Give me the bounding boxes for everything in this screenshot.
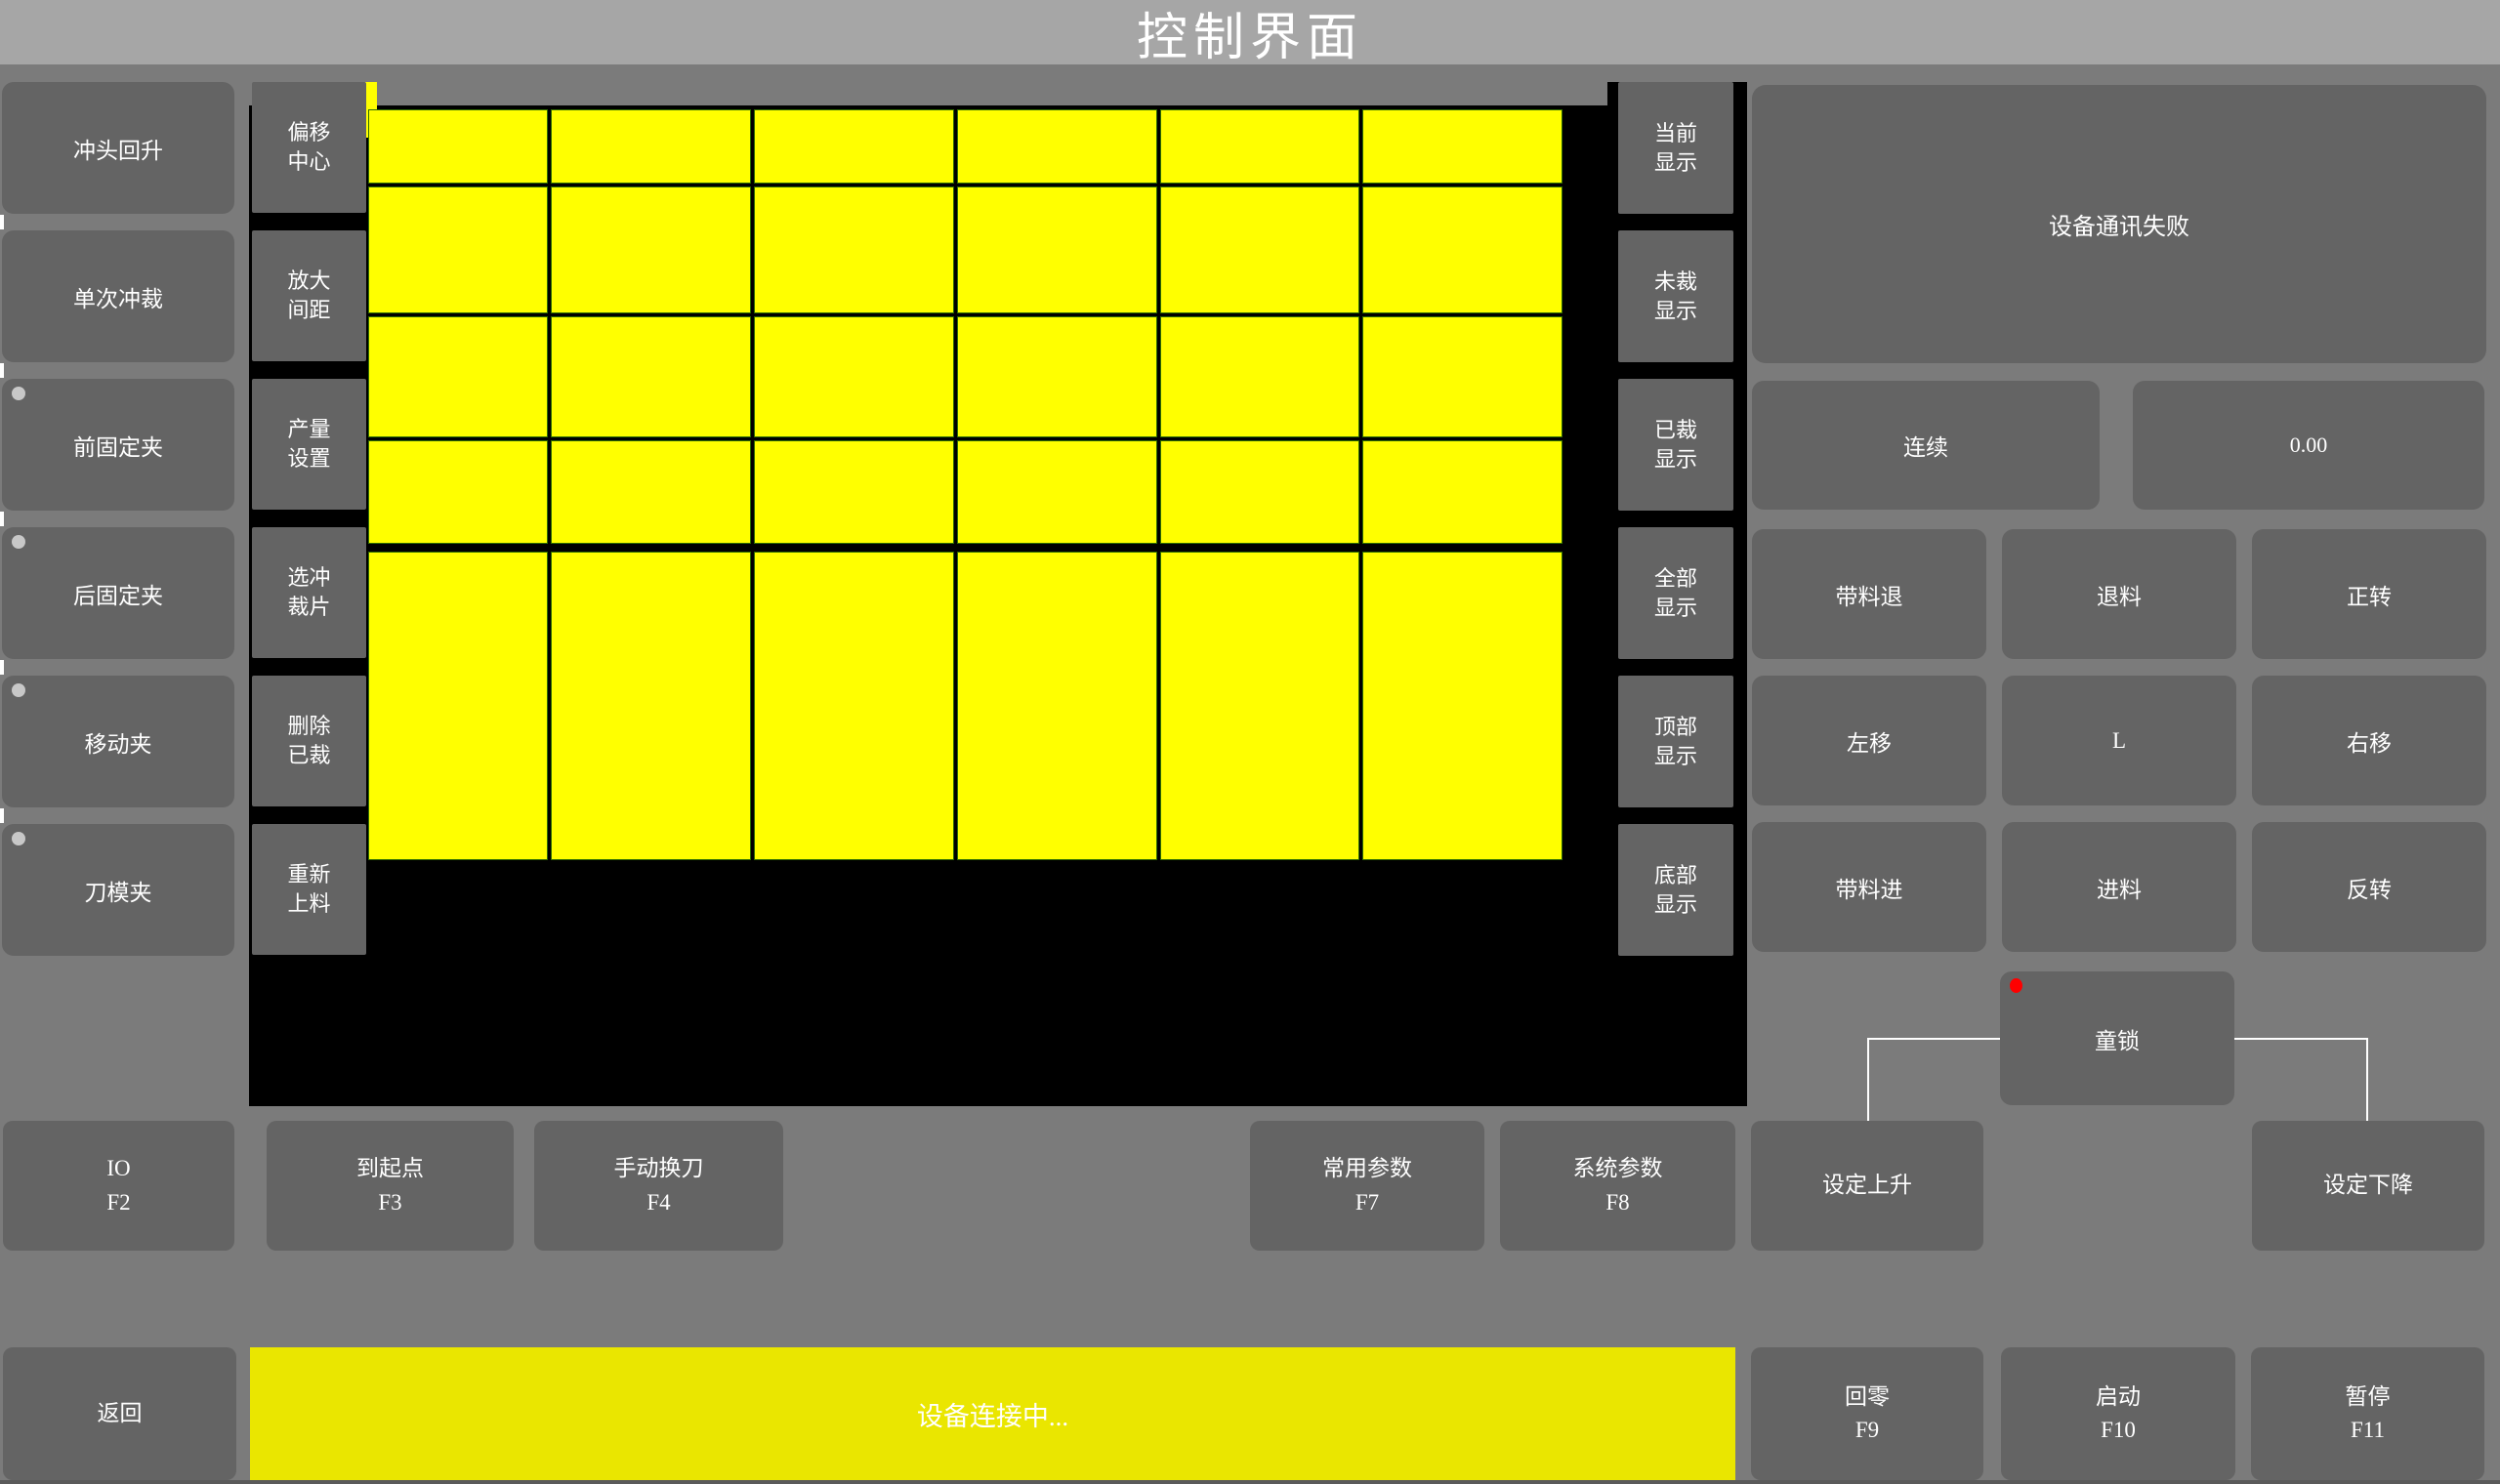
control-screen: 控制界面 冲头回升 单次冲裁 前固定夹 后固定夹 移动夹 刀模夹 偏移 中心 放… [0,0,2500,1484]
workpiece-cell[interactable] [1362,440,1562,544]
workpiece-cell[interactable] [957,316,1157,437]
workpiece-cell[interactable] [1160,316,1359,437]
tool-button-offset-center[interactable]: 偏移 中心 [252,82,366,213]
indicator-dot [12,832,25,845]
tool-button-output-settings[interactable]: 产量 设置 [252,379,366,510]
connection-status-text: 设备连接中... [917,1395,1068,1433]
workpiece-cell[interactable] [551,109,751,184]
left-divider-tick [0,215,4,229]
fn-label: 设定上升 [1822,1169,1912,1203]
fn-label: 常用参数 [1322,1152,1412,1186]
fn-key-label: F3 [378,1186,401,1220]
back-button[interactable]: 返回 [3,1347,236,1480]
left-divider-tick [0,512,4,526]
workpiece-cell[interactable] [551,440,751,544]
left-panel-button[interactable]: 刀模夹 [2,824,234,956]
bottom-edge-strip [0,1480,2500,1484]
workpiece-cell[interactable] [368,552,548,860]
workpiece-cell[interactable] [957,186,1157,313]
workpiece-cell[interactable] [1362,552,1562,860]
left-divider-tick [0,660,4,675]
workpiece-grid [368,109,1562,854]
set-rise-button[interactable]: 设定上升 [1751,1121,1983,1251]
workpiece-cell[interactable] [368,109,548,184]
left-panel-button[interactable]: 单次冲裁 [2,230,234,362]
display-button-all[interactable]: 全部 显示 [1618,527,1733,659]
fn-label: IO [106,1152,130,1186]
display-button-bottom[interactable]: 底部 显示 [1618,824,1733,956]
tool-button-reload-material[interactable]: 重新 上料 [252,824,366,955]
child-lock-button[interactable]: 童锁 [2000,971,2234,1105]
title-bar: 控制界面 [0,0,2500,64]
fn-label: 手动换刀 [614,1152,704,1186]
workpiece-cell[interactable] [957,552,1157,860]
display-button-top[interactable]: 顶部 显示 [1618,676,1733,807]
left-button-label: 单次冲裁 [73,280,163,313]
fn-key-label: F7 [1355,1186,1379,1220]
indicator-dot [12,387,25,400]
connector-line-left [1867,1038,1869,1121]
workpiece-cell[interactable] [754,440,954,544]
display-button-cut[interactable]: 已裁 显示 [1618,379,1733,511]
fn-label: 到起点 [356,1152,424,1186]
indicator-dot [12,683,25,697]
workpiece-cell[interactable] [368,440,548,544]
workpiece-cell[interactable] [1160,552,1359,860]
fn-label: 设定下降 [2323,1169,2413,1203]
io-button[interactable]: IO F2 [3,1121,234,1251]
tool-button-select-piece[interactable]: 选冲 裁片 [252,527,366,658]
left-button-label: 前固定夹 [73,429,163,462]
left-panel-button[interactable]: 前固定夹 [2,379,234,511]
workpiece-cell[interactable] [754,316,954,437]
left-divider-tick [0,808,4,823]
left-button-label: 刀模夹 [85,874,152,907]
reverse-rotation-button[interactable]: 反转 [2252,822,2486,952]
workpiece-cell[interactable] [957,109,1157,184]
connection-status-bar: 设备连接中... [250,1347,1735,1480]
workpiece-cell[interactable] [1160,440,1359,544]
feed-material-button[interactable]: 进料 [2002,822,2236,952]
workpiece-cell[interactable] [551,552,751,860]
fn-key-label: F2 [106,1186,130,1220]
workpiece-cell[interactable] [368,316,548,437]
l-button[interactable]: L [2002,676,2236,805]
left-button-label: 移动夹 [85,725,152,759]
workpiece-cell[interactable] [368,186,548,313]
workpiece-cell[interactable] [1362,186,1562,313]
left-button-label: 冲头回升 [73,132,163,165]
indicator-dot [12,535,25,549]
workpiece-cell[interactable] [754,186,954,313]
feed-back-with-material-button[interactable]: 带料退 [1752,529,1986,659]
pause-button[interactable]: 暂停 F11 [2251,1347,2484,1480]
left-panel-button[interactable]: 后固定夹 [2,527,234,659]
workpiece-cell[interactable] [754,552,954,860]
start-button[interactable]: 启动 F10 [2001,1347,2235,1480]
retract-material-button[interactable]: 退料 [2002,529,2236,659]
workpiece-cell[interactable] [754,109,954,184]
continuous-button[interactable]: 连续 [1752,381,2100,510]
bb-key-label: F9 [1855,1414,1879,1448]
fn-label: 系统参数 [1573,1152,1663,1186]
page-title: 控制界面 [1137,0,1363,69]
device-status-message: 设备通讯失败 [1752,85,2486,363]
left-panel-button[interactable]: 移动夹 [2,676,234,807]
set-descend-button[interactable]: 设定下降 [2252,1121,2484,1251]
left-divider-tick [0,363,4,378]
tool-button-enlarge-spacing[interactable]: 放大 间距 [252,230,366,361]
move-left-button[interactable]: 左移 [1752,676,1986,805]
manual-tool-change-button[interactable]: 手动换刀 F4 [534,1121,783,1251]
workpiece-cell[interactable] [1160,109,1359,184]
display-button-uncut[interactable]: 未裁 显示 [1618,230,1733,362]
bb-label: 暂停 [2346,1381,2391,1415]
workpiece-cell[interactable] [551,186,751,313]
workpiece-cell[interactable] [1362,109,1562,184]
move-right-button[interactable]: 右移 [2252,676,2486,805]
left-button-label: 后固定夹 [73,577,163,610]
child-lock-label: 童锁 [2095,1022,2140,1055]
system-parameters-button[interactable]: 系统参数 F8 [1500,1121,1735,1251]
workpiece-cell[interactable] [1160,186,1359,313]
bb-key-label: F11 [2351,1414,2385,1448]
go-to-origin-button[interactable]: 到起点 F3 [267,1121,514,1251]
return-to-zero-button[interactable]: 回零 F9 [1751,1347,1983,1480]
display-button-current[interactable]: 当前 显示 [1618,82,1733,214]
workpiece-cell[interactable] [1362,316,1562,437]
back-label: 返回 [98,1397,143,1431]
bb-label: 回零 [1845,1381,1890,1415]
tool-button-delete-cut[interactable]: 删除 已裁 [252,676,366,806]
fn-key-label: F4 [646,1186,670,1220]
value-display[interactable]: 0.00 [2133,381,2484,510]
forward-rotation-button[interactable]: 正转 [2252,529,2486,659]
bb-key-label: F10 [2101,1414,2136,1448]
workpiece-cell[interactable] [551,316,751,437]
fn-key-label: F8 [1605,1186,1629,1220]
bb-label: 启动 [2096,1381,2141,1415]
feed-in-with-material-button[interactable]: 带料进 [1752,822,1986,952]
common-parameters-button[interactable]: 常用参数 F7 [1250,1121,1484,1251]
alert-dot [2010,978,2022,993]
left-panel-button[interactable]: 冲头回升 [2,82,234,214]
connector-line-right [2366,1038,2368,1121]
workpiece-cell[interactable] [957,440,1157,544]
